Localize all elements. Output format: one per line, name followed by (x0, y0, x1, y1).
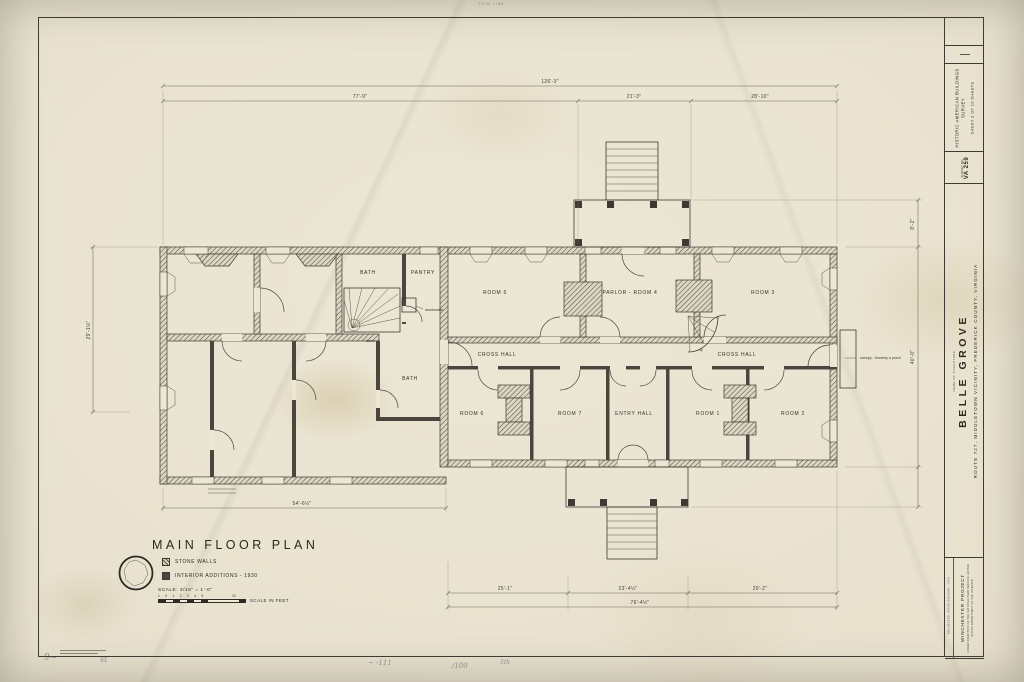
title-block-addendum-box (945, 45, 984, 63)
interior-additions-label: INTERIOR ADDITIONS - 1930 (175, 573, 258, 579)
structure-name: BELLE GROVE (957, 186, 969, 556)
project-note: UNDER DIRECTION OF THE NATIONAL PARK SER… (967, 560, 974, 656)
survey-title: HISTORIC AMERICAN BUILDINGS SURVEY (954, 66, 967, 150)
trim-line-label: TRIM LINE (478, 2, 505, 6)
survey-number: VA 259 (964, 153, 970, 183)
stone-walls-label: STONE WALLS (175, 559, 217, 565)
scale-ticks-left: 1 0 1 2 3 4 5 (158, 594, 205, 598)
structure-location: ROUTE 727, MIDDLETOWN VICINITY, FREDERIC… (973, 186, 978, 556)
plan-title: MAIN FLOOR PLAN (152, 538, 318, 552)
stone-walls-swatch (162, 558, 170, 566)
scale-ticks-right: 10 (232, 594, 236, 598)
scanned-sheet: 126'-3" 77'-9" 21'-3" 28'-10" 29'-1½" 54… (0, 0, 1024, 682)
project-name: WINCHESTER PROJECT (960, 560, 965, 656)
pencil-mark-2: st (100, 655, 107, 664)
title-block-survey-number-box: SURVEY NO. VA 259 (945, 151, 984, 183)
title-block-name-box: NAME OF STRUCTURE BELLE GROVE ROUTE 727,… (945, 183, 984, 557)
title-block-survey-box: HISTORIC AMERICAN BUILDINGS SURVEY SHEET… (945, 63, 984, 151)
delineator-strip: DELINEATED: STEVE HORNSBY - 1973 (945, 558, 954, 658)
legend-item-interior-additions: INTERIOR ADDITIONS - 1930 (162, 572, 318, 580)
scale-note: SCALE: 3/16" = 1'-0" (158, 588, 318, 593)
pencil-mark-1: 9~ (44, 653, 57, 663)
delineator-note: DELINEATED: STEVE HORNSBY - 1973 (948, 558, 951, 654)
sheet-info: SHEET 3 OF 10 SHEETS (969, 66, 975, 150)
legend-item-stone-walls: STONE WALLS (162, 558, 318, 566)
pencil-mark-5: 5th (500, 659, 510, 666)
scale-bar: 1 0 1 2 3 4 5 10 SCALE IN FEET (158, 594, 318, 603)
title-block: HISTORIC AMERICAN BUILDINGS SURVEY SHEET… (944, 17, 984, 657)
structure-name-label: NAME OF STRUCTURE (952, 186, 956, 556)
title-block-project-box: DELINEATED: STEVE HORNSBY - 1973 WINCHES… (945, 557, 984, 659)
scale-bar-label: SCALE IN FEET (250, 598, 289, 603)
scale-bar-graphic (158, 599, 246, 603)
scale-bar-ticks: 1 0 1 2 3 4 5 10 (158, 594, 246, 599)
survey-number-label: SURVEY NO. (960, 153, 964, 183)
pencil-mark-4: /100 (452, 662, 468, 670)
plan-legend: MAIN FLOOR PLAN STONE WALLS INTERIOR ADD… (152, 538, 318, 603)
pencil-mark-3: ~ -111 (368, 659, 392, 667)
interior-additions-swatch (162, 572, 170, 580)
